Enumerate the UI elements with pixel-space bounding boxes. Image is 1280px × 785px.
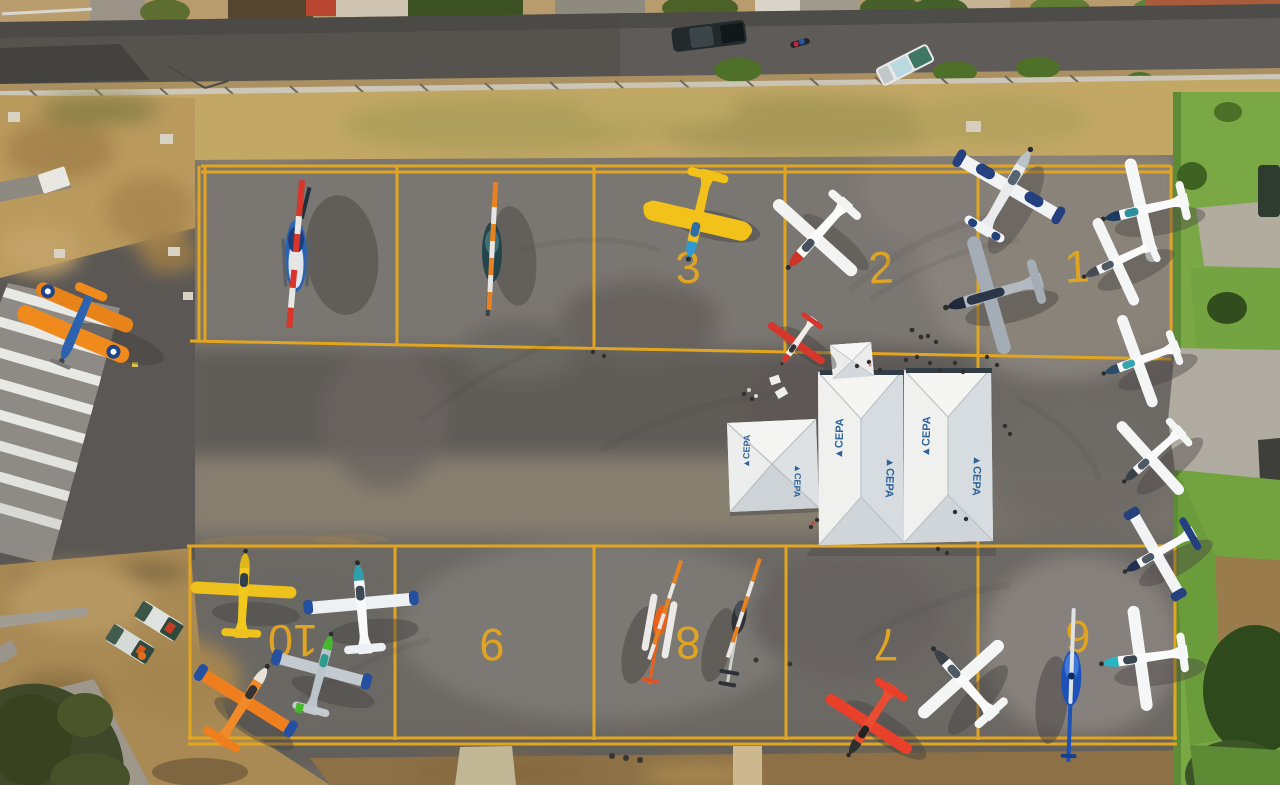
svg-text:8: 8: [675, 617, 700, 668]
svg-text:▲CEPA: ▲CEPA: [792, 464, 803, 498]
svg-text:▲CEPA: ▲CEPA: [970, 455, 983, 496]
svg-text:▲CEPA: ▲CEPA: [920, 416, 933, 457]
svg-text:▲CEPA: ▲CEPA: [741, 434, 752, 468]
svg-text:▲CEPA: ▲CEPA: [833, 418, 846, 459]
svg-text:1: 1: [1063, 240, 1091, 292]
svg-text:9: 9: [479, 619, 504, 670]
svg-text:▲CEPA: ▲CEPA: [883, 457, 896, 498]
